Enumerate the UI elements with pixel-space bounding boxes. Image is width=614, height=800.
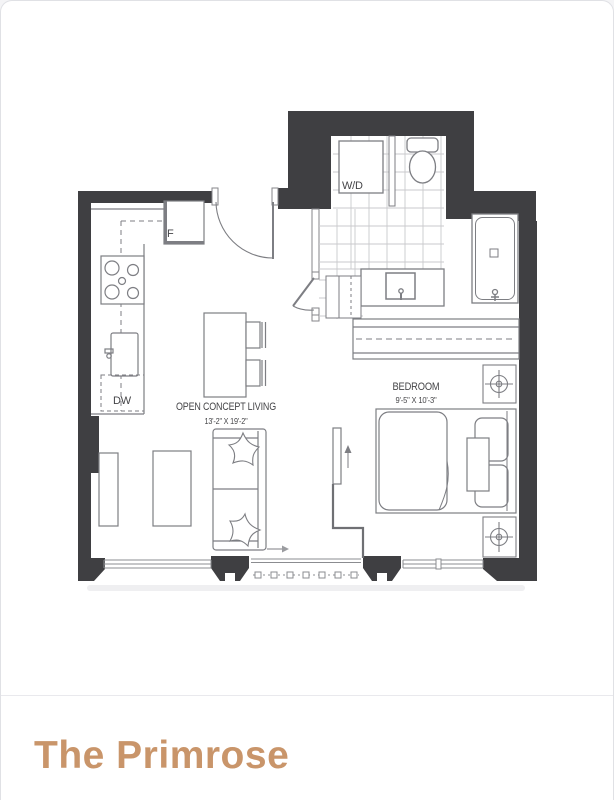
stool xyxy=(246,322,266,348)
plan-title: The Primrose xyxy=(34,734,289,778)
coffee-table xyxy=(153,451,191,526)
floor-plan: F W/D DW OPEN CONCEPT LIVING 13'-2" X 19… xyxy=(1,1,614,695)
washer-dryer-label: W/D xyxy=(342,180,363,192)
bathtub xyxy=(472,214,518,303)
plan-shadow xyxy=(87,585,525,591)
window xyxy=(104,560,211,568)
vanity-sink xyxy=(361,269,444,306)
card-divider xyxy=(1,695,614,696)
upper-cabinets-dashed xyxy=(121,221,164,411)
column-symbol xyxy=(483,517,516,557)
toilet xyxy=(407,138,438,183)
floor-plan-card[interactable]: F W/D DW OPEN CONCEPT LIVING 13'-2" X 19… xyxy=(0,0,614,800)
stove xyxy=(101,256,144,304)
bedroom-closet xyxy=(353,319,519,359)
kitchen-island xyxy=(204,313,246,397)
kitchen-sink xyxy=(105,333,138,376)
bedroom-label: BEDROOM xyxy=(393,381,440,393)
window xyxy=(403,560,483,568)
sofa xyxy=(213,429,266,550)
kitchen xyxy=(91,201,266,414)
fridge-label: F xyxy=(167,228,174,240)
interior-walls xyxy=(312,209,319,321)
stool xyxy=(246,360,266,386)
hall-closet xyxy=(326,276,361,318)
bed xyxy=(376,409,516,513)
balcony-door-track xyxy=(251,559,361,563)
living-room xyxy=(99,429,289,553)
living-room-label: OPEN CONCEPT LIVING xyxy=(176,401,276,413)
bedroom-dims: 9'-5" X 10'-3" xyxy=(396,396,437,405)
dishwasher-label: DW xyxy=(113,395,132,407)
tv-console xyxy=(99,453,118,526)
sliding-door xyxy=(333,428,363,558)
living-room-dims: 13'-2" X 19'-2" xyxy=(205,417,248,426)
bathroom-door xyxy=(293,278,314,310)
partition-wall xyxy=(333,484,363,558)
kitchen-counter xyxy=(91,209,164,414)
entry-door xyxy=(216,202,273,259)
bath-partition xyxy=(389,136,395,206)
slide-arrow xyxy=(267,546,289,553)
windows xyxy=(104,559,483,578)
column-symbol xyxy=(483,365,516,403)
